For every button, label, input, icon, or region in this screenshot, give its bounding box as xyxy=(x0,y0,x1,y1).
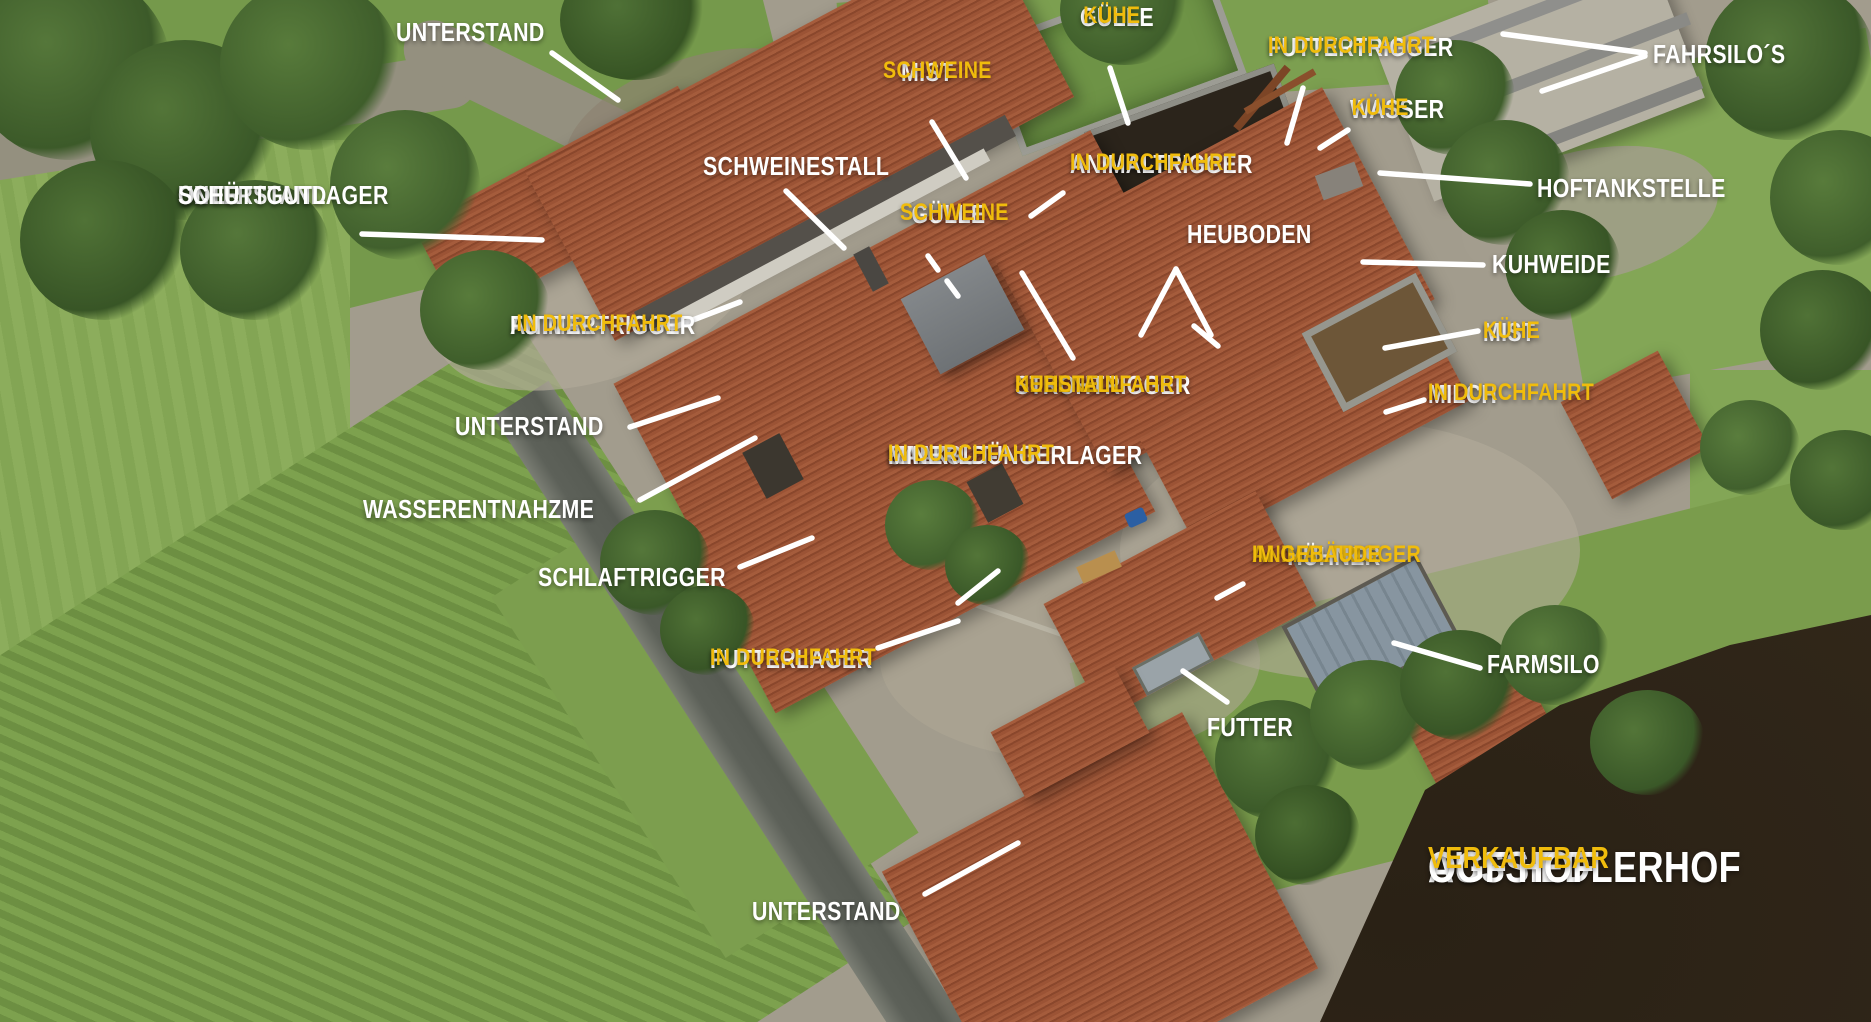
map-label-line: KÜHE xyxy=(1352,93,1409,123)
map-label-line: SCHWEINE xyxy=(900,198,1009,228)
map-label-line: UNTERSTAND xyxy=(455,410,604,443)
map-label-line: FAHRSILO´S xyxy=(1653,38,1785,71)
map-label-line: FUTTER xyxy=(1207,711,1293,744)
map-label-line: HOFTANKSTELLE xyxy=(1537,172,1726,205)
map-label-line: UNTERSTAND xyxy=(752,895,901,928)
map-label-line: KÜHE xyxy=(1483,316,1540,346)
map-label-line: IN DURCHFAHRT xyxy=(1268,31,1434,61)
map-label-line: SCHÜTTGUTLAGER xyxy=(178,178,389,212)
map-label-line: WASSERENTNAHZME xyxy=(363,493,594,526)
map-label-line: KÜHE xyxy=(1083,1,1140,31)
map-label-line: UNTERSTAND xyxy=(396,16,545,49)
map-label-line: SCHWEINE xyxy=(883,56,992,86)
map-label-line: IN DURCHFAHRT xyxy=(888,438,1054,470)
map-label-line: SCHWEINESTALL xyxy=(703,150,889,183)
map-label-line: KUHSTALL xyxy=(1015,369,1122,400)
map-label-line: IN DURCHFAHRT xyxy=(1428,378,1594,408)
map-label-line: IM GEBÄUDE xyxy=(1252,540,1381,570)
farm-map-screenshot: UNTERSTANDMISTSCHWEINEGÜLLEKÜHEFUTTERTRI… xyxy=(0,0,1871,1022)
map-label-line: VERKAUFBAR xyxy=(1428,835,1609,882)
map-label-line: IN DURCHFAHRT xyxy=(517,308,683,340)
map-label-line: FARMSILO xyxy=(1487,648,1600,681)
map-label-line: HEUBODEN xyxy=(1187,218,1312,251)
annotation-layer: UNTERSTANDMISTSCHWEINEGÜLLEKÜHEFUTTERTRI… xyxy=(0,0,1871,1022)
map-label-line: IN DURCHFAHRT xyxy=(710,643,876,673)
map-label-line: IN DURCHFAHRT xyxy=(1070,148,1236,178)
map-label-line: SCHLAFTRIGGER xyxy=(538,561,726,594)
map-label-line: KUHWEIDE xyxy=(1492,248,1611,281)
